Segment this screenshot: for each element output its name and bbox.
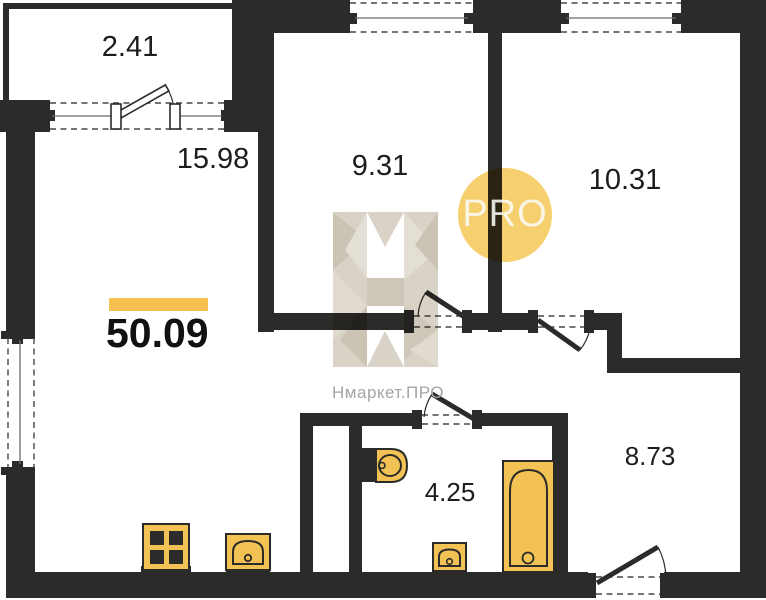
room-label-room-1: 9.31: [335, 152, 425, 181]
washbasin-icon: [433, 543, 466, 575]
total-area-value: 50.09: [106, 313, 209, 354]
logo-letter-n-icon: [333, 212, 438, 367]
room-2-door: [538, 320, 590, 350]
floor-plan: 2.41 15.98 9.31 10.31 4.25 8.73 50.09 PR…: [0, 0, 766, 600]
watermark-brand-text: Нмаркет.ПРО: [328, 383, 448, 403]
kitchen-sink-icon: [226, 534, 270, 578]
bathtub-icon: [503, 461, 554, 572]
room-label-room-2: 10.31: [577, 166, 673, 195]
room-label-hallway: 8.73: [605, 443, 695, 469]
pro-badge-text: PRO: [459, 195, 551, 233]
stove-icon: [141, 524, 191, 578]
toilet-icon: [359, 448, 407, 482]
room-label-living-kitchen: 15.98: [168, 145, 258, 174]
room-label-bathroom: 4.25: [405, 479, 495, 505]
balcony-door: [111, 85, 180, 129]
room-label-balcony: 2.41: [95, 33, 165, 62]
